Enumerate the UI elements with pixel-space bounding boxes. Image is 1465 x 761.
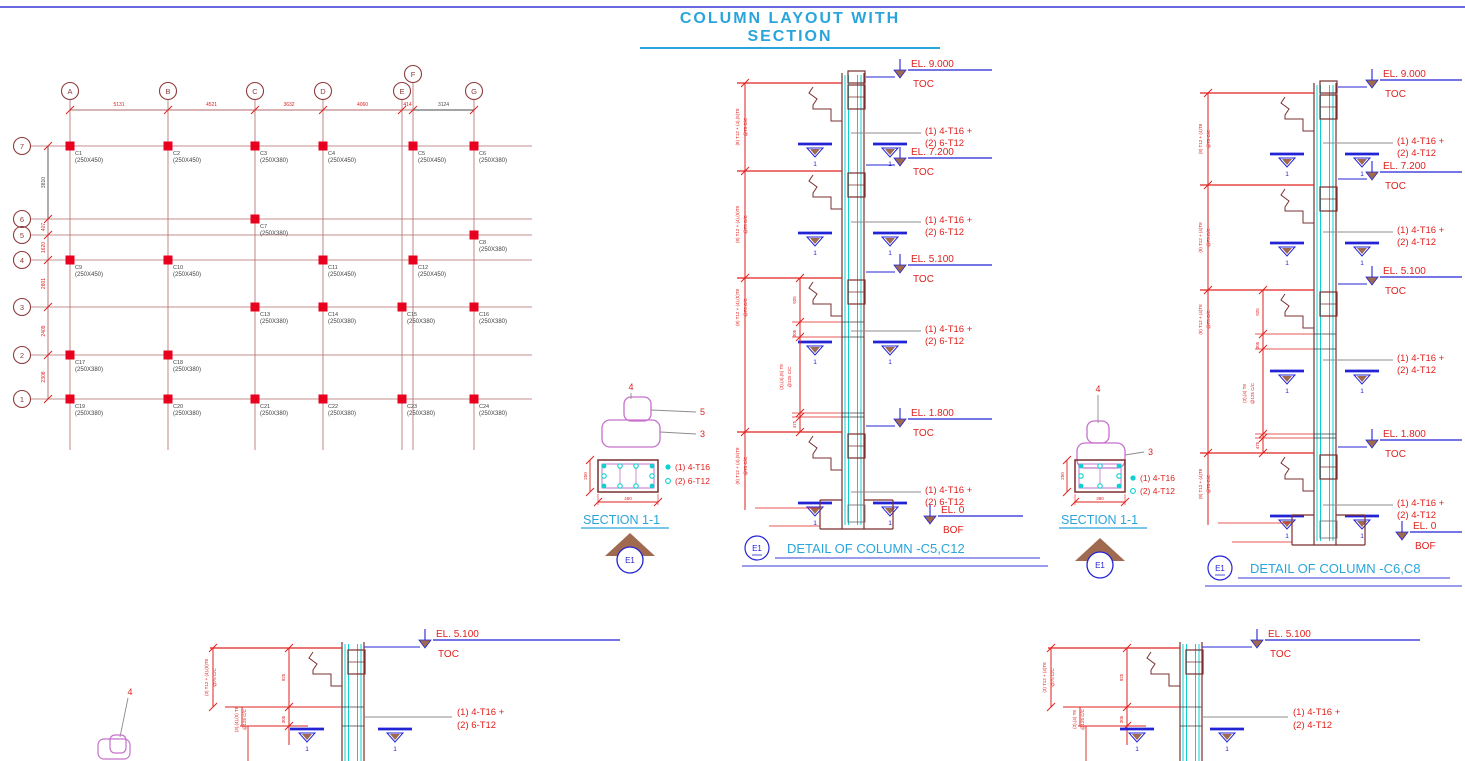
column-label: C10 [173,265,183,271]
e1-marker-label: E1 [1095,561,1105,570]
rebar-dot-filled [1079,464,1084,469]
rebar-label: (2) 6-T12 [457,720,496,731]
column-marker-c18 [164,351,173,360]
column-size-label: (250X450) [328,272,356,278]
dim-label: 2308 [41,371,47,382]
dim-label: 380 [1096,496,1104,501]
rebar-label: (1) 4-T16 + [457,707,505,718]
column-label: C21 [260,404,270,410]
elev-triangle [1366,80,1378,88]
detail-marker-label: E1 [1215,564,1225,573]
grid-bubble-label: 6 [20,215,24,224]
cut-triangle-fill [885,149,895,155]
slab-break [309,652,342,686]
tie-note: @75 C/C [1206,474,1211,493]
column-cross-section [598,460,658,492]
dim-label: 4521 [206,102,217,108]
tie-note: (8) T12 + (4),(5)T8 [735,447,740,485]
rebar-dot-filled [1117,484,1122,489]
column-marker-c4 [319,142,328,151]
callout-label: 4 [1095,384,1100,394]
dim-label: 450 [624,496,632,501]
elev-triangle [924,516,936,524]
elev-triangle [1366,172,1378,180]
tie-note: @75 C/C [743,214,748,233]
dim-label: 925 [281,673,286,681]
level-ref-label: TOC [1385,89,1406,100]
rebar-dot-hollow [634,464,638,468]
column-size-label: (250X450) [418,272,446,278]
column-size-label: (250X380) [260,231,288,237]
rebar-label: (1) 4-T16 + [1397,498,1445,509]
legend-label: (2) 4-T12 [1140,486,1175,496]
grid-bubble-label: 4 [20,256,24,265]
splice-note: (3),(4),(5) T8 [234,706,239,732]
rebar-label: (2) 6-T12 [925,336,964,347]
level-ref-label: TOC [1385,286,1406,297]
rebar-label: (1) 4-T16 + [1397,353,1445,364]
column-size-label: (250X450) [418,158,446,164]
rebar-label: (2) 6-T12 [925,138,964,149]
splice-note: @125 C/C [787,366,792,388]
cut-triangle-fill [390,734,400,740]
rebar-dot-hollow [1098,464,1102,468]
column-marker-c5 [409,142,418,151]
cut-mark-label: 1 [1285,533,1289,540]
cut-mark-label: 1 [1285,388,1289,395]
rebar-dot-hollow [650,474,654,478]
cut-triangle-fill [1132,734,1142,740]
column-marker-c17 [66,351,75,360]
grid-bubble-label: B [165,87,170,96]
column-label: C12 [418,265,428,271]
detail-of-column-c6-c8: EL. 9.000TOCEL. 7.200TOCEL. 5.100TOCEL. … [1198,69,1462,586]
dowel-box [848,505,865,522]
tie-note: (8) T12 + (4)T8 [1198,468,1203,499]
tie-note: (8) T12 + (4)T8 [1198,304,1203,335]
rebar-label: (2) 4-T12 [1293,720,1332,731]
rebar-label: (1) 4-T16 + [925,324,973,335]
column-size-label: (250X450) [173,272,201,278]
rebar-dot-filled [650,464,655,469]
rebar-dot-hollow [1117,474,1121,478]
column-marker-c10 [164,256,173,265]
elev-triangle [894,158,906,166]
level-ref-label: TOC [438,649,459,660]
tie-note: @75 C/C [1206,227,1211,246]
column-size-label: (250X450) [75,158,103,164]
cut-mark-label: 1 [393,746,397,753]
callout-leader [120,698,128,737]
column-marker-c8 [470,231,479,240]
column-marker-c3 [251,142,260,151]
column-label: C7 [260,224,267,230]
cut-triangle-fill [810,238,820,244]
dim-label: 475 [792,420,797,428]
cut-mark-label: 1 [305,746,309,753]
slab-break [809,175,842,209]
column-label: C23 [407,404,417,410]
rebar-label: (1) 4-T16 + [925,126,973,137]
column-marker-c13 [251,303,260,312]
cut-mark-label: 1 [1285,171,1289,178]
column-label: C20 [173,404,183,410]
cut-mark-label: 1 [1135,746,1139,753]
column-size-label: (250X380) [260,319,288,325]
section-title: SECTION 1-1 [1061,513,1138,527]
stirrup-shape [110,735,126,753]
section-1-1-right: 43380250(1) 4-T16(2) 4-T12SECTION 1-1E1 [1059,384,1175,578]
elevation-label: EL. 1.800 [1383,429,1426,440]
grid-bubble-label: G [471,87,477,96]
column-marker-c9 [66,256,75,265]
column-label: C18 [173,360,183,366]
cut-triangle-fill [1222,734,1232,740]
level-ref-label: TOC [1385,449,1406,460]
column-stub [1320,81,1337,93]
dim-label: 305 [792,329,797,337]
rebar-dot-hollow [618,464,622,468]
detail-title: DETAIL OF COLUMN -C6,C8 [1250,561,1420,576]
column-stub [848,71,865,83]
rebar-label: (2) 4-T12 [1397,237,1436,248]
legend-dot-hollow [666,479,671,484]
column-size-label: (250X450) [328,158,356,164]
column-marker-c1 [66,142,75,151]
column-marker-c23 [398,395,407,404]
elevation-label: EL. 5.100 [1383,266,1426,277]
level-ref-label: TOC [913,167,934,178]
dim-label: 925 [1255,308,1260,316]
elev-triangle [419,640,431,648]
elevation-label: EL. 5.100 [436,629,479,640]
cut-mark-label: 1 [813,161,817,168]
tie-note: @75 C/C [212,667,217,686]
column-marker-c6 [470,142,479,151]
rebar-label: (1) 4-T16 + [1397,225,1445,236]
cut-triangle-fill [1357,248,1367,254]
splice-note: @125 C/C [1250,382,1255,404]
cut-mark-label: 1 [1285,260,1289,267]
legend-dot-hollow [1131,489,1136,494]
elevation-label: EL. 9.000 [1383,69,1426,80]
dim-label: 3632 [283,102,294,108]
column-marker-c12 [409,256,418,265]
splice-note: (3),(4) T8 [1242,384,1247,403]
tie-note: (8) T12 + (4)T8 [1198,123,1203,154]
tie-note: @75 C/C [1206,309,1211,328]
grid-bubble-label: A [67,87,72,96]
elev-triangle [1396,532,1408,540]
tie-note: @75 C/C [743,456,748,475]
dim-label: 3810 [41,177,47,188]
splice-note: (3),(4),(5) T8 [779,364,784,390]
column-marker-c14 [319,303,328,312]
legend-label: (2) 6-T12 [675,476,710,486]
column-label: C3 [260,151,267,157]
callout-label: 4 [628,382,633,392]
callout-leader [651,410,696,412]
rebar-label: (1) 4-T16 + [1293,707,1341,718]
elevation-label: EL. 0 [941,505,965,516]
grid-bubble-label: 7 [20,142,24,151]
column-size-label: (250X380) [479,319,507,325]
slab-break [1281,97,1314,131]
legend-dot-filled [665,464,670,469]
section-1-1-left: 453450250(1) 4-T16(2) 6-T12SECTION 1-1E1 [581,382,710,573]
slab-break [1281,294,1314,328]
column-size-label: (250X380) [479,158,507,164]
column-label: C22 [328,404,338,410]
dim-label: 305 [1119,715,1124,723]
partial-detail-bottom-right: (3) T12 + (4)T8@75 C/C(3),(4) T8@125 C/C… [1042,629,1420,761]
tie-note: @75 C/C [743,117,748,136]
column-size-label: (250X380) [407,411,435,417]
cut-triangle-fill [810,149,820,155]
column-layout-plan: ABCDEFG513145213632406041431247654321381… [14,66,533,451]
detail-of-column-c5-c12: EL. 9.000TOCEL. 7.200TOCEL. 5.100TOCEL. … [735,59,1048,566]
column-label: C15 [407,312,417,318]
rebar-label: (1) 4-T16 + [1397,136,1445,147]
stirrup-shape [602,420,660,447]
column-label: C13 [260,312,270,318]
grid-bubble-label: 5 [20,231,24,240]
column-label: C16 [479,312,489,318]
column-label: C14 [328,312,338,318]
dim-label: 1620 [41,242,47,253]
cut-mark-label: 1 [888,520,892,527]
cut-mark-label: 1 [813,250,817,257]
rebar-dot-hollow [1079,474,1083,478]
detail-marker-label: E1 [752,544,762,553]
cut-triangle-fill [1282,248,1292,254]
grid-bubble-label: 3 [20,303,24,312]
column-label: C2 [173,151,180,157]
column-label: C17 [75,360,85,366]
dim-label: 2801 [41,278,47,289]
rebar-dot-filled [1079,484,1084,489]
dim-label: 250 [583,472,588,480]
column-size-label: (250X380) [75,367,103,373]
cut-triangle-fill [885,238,895,244]
level-ref-label: TOC [1270,649,1291,660]
cut-triangle-fill [885,347,895,353]
cad-sheet: COLUMN LAYOUT WITH SECTION ABCDEFG513145… [0,0,1465,761]
elev-triangle [894,70,906,78]
dim-label: 5131 [113,102,124,108]
column-size-label: (250X380) [75,411,103,417]
cut-mark-label: 1 [888,250,892,257]
cut-triangle-fill [1357,376,1367,382]
column-size-label: (250X380) [328,411,356,417]
cut-mark-label: 1 [1360,260,1364,267]
tie-note: @75 C/C [1206,129,1211,148]
column-marker-c7 [251,215,260,224]
dim-label: 2409 [41,325,47,336]
stirrup-shape [624,397,651,421]
section-title: SECTION 1-1 [583,513,660,527]
rebar-label: (1) 4-T16 + [925,215,973,226]
dim-label: 925 [792,296,797,304]
slab-break [1281,189,1314,223]
rebar-label: (2) 4-T12 [1397,510,1436,521]
column-marker-c16 [470,303,479,312]
elev-triangle [894,265,906,273]
column-label: C4 [328,151,335,157]
rebar-label: (2) 6-T12 [925,227,964,238]
grid-bubble-label: C [252,87,258,96]
rebar-label: (2) 4-T12 [1397,148,1436,159]
detail-title: DETAIL OF COLUMN -C5,C12 [787,541,965,556]
callout-label: 3 [700,429,705,439]
page-title: COLUMN LAYOUT WITH SECTION [640,10,940,49]
callout-leader [660,432,696,434]
splice-note: @125 C/C [242,708,247,730]
cut-triangle-fill [810,508,820,514]
column-label: C19 [75,404,85,410]
column-label: C11 [328,265,338,271]
column-marker-c21 [251,395,260,404]
column-marker-c20 [164,395,173,404]
column-size-label: (250X380) [328,319,356,325]
sheet-border-line [0,6,1465,8]
drawing-canvas: ABCDEFG513145213632406041431247654321381… [0,0,1465,761]
grid-bubble-label: F [411,70,416,79]
elevation-label: EL. 7.200 [1383,161,1426,172]
cut-triangle-fill [1282,521,1292,527]
slab-break [809,436,842,470]
dim-label: 407 [41,223,47,232]
e1-marker-label: E1 [625,556,635,565]
dim-label: 475 [1255,441,1260,449]
cut-triangle-fill [1282,159,1292,165]
column-size-label: (250X380) [407,319,435,325]
grid-bubble-label: 1 [20,395,24,404]
grid-bubble-label: D [320,87,326,96]
callout-label: 5 [700,407,705,417]
column-marker-c2 [164,142,173,151]
dowel-box [1320,521,1337,538]
rebar-dot-hollow [602,474,606,478]
cut-triangle-fill [302,734,312,740]
dim-label: 250 [1060,472,1065,480]
column-label: C5 [418,151,425,157]
column-size-label: (250X380) [173,411,201,417]
elevation-label: EL. 5.100 [911,254,954,265]
column-label: C8 [479,240,486,246]
cut-mark-label: 1 [1360,533,1364,540]
dim-label: 305 [281,715,286,723]
legend-label: (1) 4-T16 [1140,473,1175,483]
column-size-label: (250X450) [173,158,201,164]
level-ref-label: BOF [1415,541,1436,552]
rebar-dot-filled [602,464,607,469]
tie-note: @75 C/C [743,297,748,316]
cut-mark-label: 1 [1225,746,1229,753]
elev-triangle [1366,440,1378,448]
tie-note: (8) T12 + (4),(5)T8 [735,288,740,326]
slab-break [1147,652,1180,686]
column-marker-c22 [319,395,328,404]
column-label: C9 [75,265,82,271]
cut-mark-label: 1 [813,359,817,366]
tie-note: (3) T12 + (4),(5)T8 [204,658,209,696]
column-marker-c11 [319,256,328,265]
rebar-dot-filled [1117,464,1122,469]
elev-triangle [1366,277,1378,285]
rebar-dot-filled [650,484,655,489]
rebar-dot-filled [602,484,607,489]
column-marker-c15 [398,303,407,312]
elevation-label: EL. 9.000 [911,59,954,70]
rebar-label: (2) 4-T12 [1397,365,1436,376]
level-ref-label: BOF [943,525,964,536]
column-size-label: (250X380) [479,411,507,417]
column-size-label: (250X450) [75,272,103,278]
elev-triangle [894,419,906,427]
slab-break [809,282,842,316]
stirrup-shape [1087,421,1109,443]
dim-label: 925 [1119,673,1124,681]
partial-detail-bottom-left: (3) T12 + (4),(5)T8@75 C/C(3),(4),(5) T8… [98,629,620,761]
level-ref-label: TOC [913,428,934,439]
column-size-label: (250X380) [260,411,288,417]
callout-leader [1125,452,1144,455]
cut-triangle-fill [1357,159,1367,165]
column-size-label: (250X380) [479,247,507,253]
elev-triangle [1251,640,1263,648]
cut-mark-label: 1 [888,161,892,168]
column-marker-c19 [66,395,75,404]
column-label: C1 [75,151,82,157]
dim-label: 4060 [357,102,368,108]
level-ref-label: TOC [1385,181,1406,192]
splice-note: (3),(4) T8 [1072,710,1077,729]
column-size-label: (250X380) [260,158,288,164]
column-size-label: (250X380) [173,367,201,373]
rebar-dot-hollow [1098,484,1102,488]
rebar-dot-hollow [634,484,638,488]
grid-bubble-label: 2 [20,351,24,360]
legend-label: (1) 4-T16 [675,462,710,472]
rebar-dot-hollow [618,484,622,488]
legend-dot-filled [1130,475,1135,480]
tie-note: (8) T12 + (4),(5)T8 [735,205,740,243]
tie-note: (3) T12 + (4)T8 [1042,662,1047,693]
column-marker-c24 [470,395,479,404]
tie-note: (8) T12 + (4)T8 [1198,222,1203,253]
dim-label: 305 [1255,341,1260,349]
slab-break [809,87,842,121]
stirrup-rect [602,464,654,488]
callout-label: 4 [127,687,132,697]
cut-mark-label: 1 [1360,171,1364,178]
column-label: C6 [479,151,486,157]
dim-label: 3124 [438,102,449,108]
grid-bubble-label: E [399,87,404,96]
cut-mark-label: 1 [888,359,892,366]
elevation-label: EL. 1.800 [911,408,954,419]
splice-note: @125 C/C [1080,708,1085,730]
slab-break [1281,457,1314,491]
callout-label: 3 [1148,447,1153,457]
tie-note: (8) T12 + (4),(5)T8 [735,108,740,146]
stirrup-shape [98,739,130,759]
level-ref-label: TOC [913,274,934,285]
cut-triangle-fill [810,347,820,353]
elevation-label: EL. 0 [1413,521,1437,532]
rebar-label: (1) 4-T16 + [925,485,973,496]
